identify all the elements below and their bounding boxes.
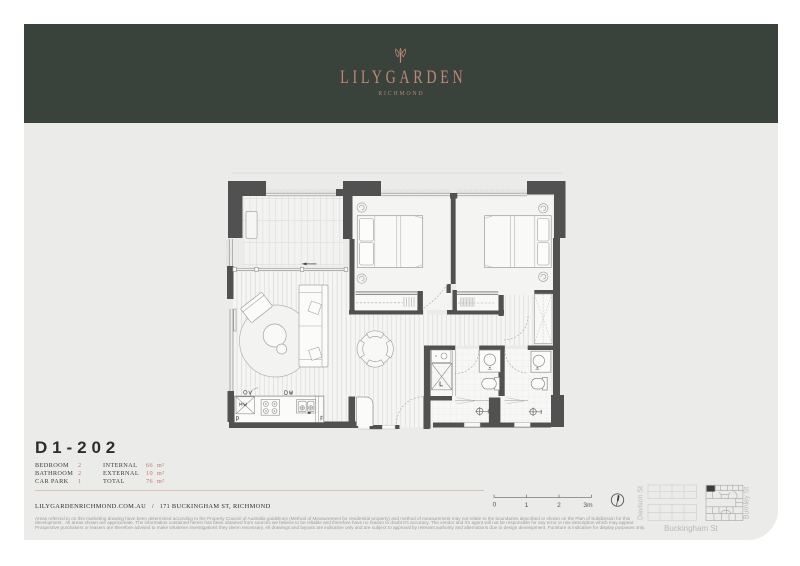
svg-text:0: 0 [493,502,497,509]
svg-text:Burnley St: Burnley St [744,487,751,519]
svg-text:Buckingham St: Buckingham St [664,524,719,533]
svg-text:Davison St: Davison St [638,486,645,520]
svg-text:1: 1 [525,502,529,509]
svg-text:2: 2 [557,502,561,509]
svg-text:3m: 3m [583,502,593,509]
